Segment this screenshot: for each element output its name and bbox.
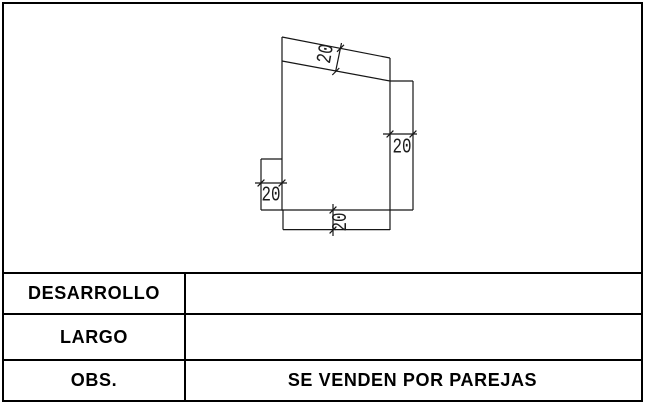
development-sheet: 20 20 20 20 DESARROLLO xyxy=(0,0,646,404)
dim-bottom-label: 20 xyxy=(330,213,353,232)
dimension-right: 20 xyxy=(383,131,417,160)
dim-right-label: 20 xyxy=(393,137,412,160)
row-largo-value xyxy=(186,315,639,359)
row-obs-value: SE VENDEN POR PAREJAS xyxy=(186,361,639,400)
row-largo-label: LARGO xyxy=(4,315,184,359)
row-desarrollo-value xyxy=(186,274,639,313)
row-obs-label: OBS. xyxy=(4,361,184,400)
dim-top-label: 20 xyxy=(314,43,340,66)
dim-left-tab-label: 20 xyxy=(262,185,281,208)
row-desarrollo-label: DESARROLLO xyxy=(4,274,184,313)
dimension-bottom: 20 xyxy=(330,204,353,236)
